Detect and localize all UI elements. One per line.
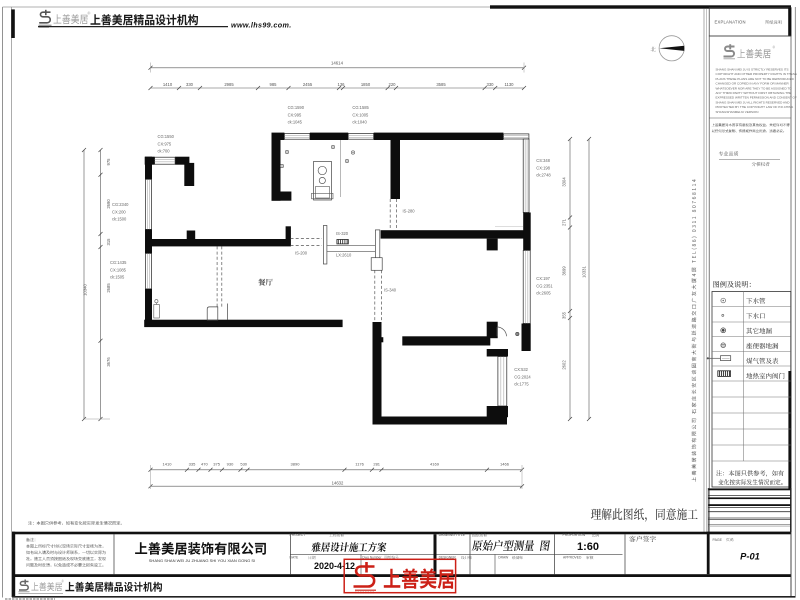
svg-text:ck:1775: ck:1775 bbox=[514, 382, 529, 387]
svg-text:ck:1045: ck:1045 bbox=[288, 120, 303, 125]
svg-text:281: 281 bbox=[373, 462, 380, 467]
svg-text:2020-4-12: 2020-4-12 bbox=[314, 561, 355, 571]
svg-text:10340: 10340 bbox=[83, 284, 88, 296]
svg-text:LX:2610: LX:2610 bbox=[336, 253, 352, 258]
svg-text:PROJECT: PROJECT bbox=[290, 533, 306, 537]
svg-text:2685: 2685 bbox=[106, 283, 111, 293]
svg-text:APPROVED: APPROVED bbox=[563, 556, 582, 560]
svg-text:985: 985 bbox=[270, 82, 278, 87]
svg-text:IS-340: IS-340 bbox=[384, 288, 397, 293]
svg-text:136: 136 bbox=[338, 82, 346, 87]
svg-text:EXPRESSED WRITTEN PERMISSION A: EXPRESSED WRITTEN PERMISSION AND CONSENT… bbox=[716, 96, 797, 100]
svg-text:CG:2024: CG:2024 bbox=[514, 374, 531, 379]
svg-text:PLANS THESE PLANS ARE NOT TO B: PLANS THESE PLANS ARE NOT TO BE REPRODUC… bbox=[716, 77, 795, 81]
svg-text:ck:1500: ck:1500 bbox=[112, 217, 127, 222]
svg-text:355: 355 bbox=[562, 311, 567, 319]
svg-text:IS-280: IS-280 bbox=[403, 209, 416, 214]
svg-text:ANY THIRD PARTY WITHOUT FIRST: ANY THIRD PARTY WITHOUT FIRST OBTAINING … bbox=[716, 91, 792, 95]
svg-text:CX:197: CX:197 bbox=[536, 276, 550, 281]
svg-text:530: 530 bbox=[240, 462, 247, 467]
svg-text:ck:1040: ck:1040 bbox=[352, 120, 367, 125]
svg-text:CG:1435: CG:1435 bbox=[110, 260, 127, 265]
svg-text:SHANG SHAN MEI JU ALL RIGHTS: SHANG SHAN MEI JU ALL RIGHTS RESERVED AN… bbox=[716, 100, 791, 104]
svg-text:3699: 3699 bbox=[562, 266, 567, 276]
svg-text:1130: 1130 bbox=[504, 82, 514, 87]
svg-text:ck:1505: ck:1505 bbox=[110, 275, 125, 280]
svg-text:CX:1005: CX:1005 bbox=[352, 112, 369, 117]
svg-text:DRAWING TITLE: DRAWING TITLE bbox=[439, 533, 466, 537]
svg-text:220: 220 bbox=[389, 82, 397, 87]
svg-text:CX:198: CX:198 bbox=[536, 165, 550, 170]
svg-text:CX:532: CX:532 bbox=[514, 367, 528, 372]
svg-text:2985: 2985 bbox=[224, 82, 234, 87]
svg-text:PAGE: PAGE bbox=[713, 538, 723, 542]
svg-text:ck:2605: ck:2605 bbox=[536, 291, 551, 296]
svg-text:®: ® bbox=[773, 46, 776, 50]
svg-text:DATE: DATE bbox=[290, 556, 300, 560]
svg-text:ck:700: ck:700 bbox=[158, 149, 171, 154]
svg-text:CX:200: CX:200 bbox=[112, 209, 126, 214]
svg-text:IS-200: IS-200 bbox=[295, 251, 308, 256]
svg-text:PROPORTION: PROPORTION bbox=[563, 533, 586, 537]
svg-text:3304: 3304 bbox=[562, 177, 567, 187]
svg-text:EXPLANATION: EXPLANATION bbox=[715, 20, 746, 25]
svg-text:CG:1550: CG:1550 bbox=[158, 134, 175, 139]
svg-text:1850: 1850 bbox=[361, 82, 371, 87]
svg-text:IS-320: IS-320 bbox=[336, 231, 349, 236]
svg-text:CG:2351: CG:2351 bbox=[536, 283, 553, 288]
svg-text:WHATSOEVER NOR ARE THEY TO BE: WHATSOEVER NOR ARE THEY TO BE ASSIGNED T… bbox=[716, 86, 793, 90]
svg-text:10331: 10331 bbox=[582, 266, 587, 278]
svg-text:1:60: 1:60 bbox=[577, 541, 599, 553]
svg-text:1410: 1410 bbox=[163, 82, 173, 87]
svg-text:CG:1590: CG:1590 bbox=[288, 105, 305, 110]
svg-text:CX:995: CX:995 bbox=[288, 112, 302, 117]
svg-text:330: 330 bbox=[186, 82, 194, 87]
svg-text:CG:1585: CG:1585 bbox=[352, 105, 369, 110]
svg-text:CG:2340: CG:2340 bbox=[112, 202, 129, 207]
svg-text:3676: 3676 bbox=[106, 357, 111, 367]
svg-text:3890: 3890 bbox=[291, 462, 301, 467]
svg-text:975: 975 bbox=[106, 158, 111, 166]
svg-text:930: 930 bbox=[227, 462, 234, 467]
svg-text:CX:1085: CX:1085 bbox=[110, 267, 127, 272]
svg-text:®: ® bbox=[87, 11, 90, 16]
svg-text:SHANG SHAN WEI JU ZHUANG SHI Y: SHANG SHAN WEI JU ZHUANG SHI YOU XIAN GO… bbox=[149, 558, 256, 563]
svg-text:SHANG SHAN MEI JU IS STRICTLY: SHANG SHAN MEI JU IS STRICTLY RESERVES I… bbox=[716, 68, 789, 72]
svg-text:2690: 2690 bbox=[106, 199, 111, 209]
svg-text:COPYRIGHT AND OTHER PROPERTY R: COPYRIGHT AND OTHER PROPERTY RIGHTS IN T… bbox=[716, 72, 797, 76]
svg-text:SHANGSHANMEIJU VERSION: SHANGSHANMEIJU VERSION bbox=[716, 110, 759, 114]
svg-text:CX:975: CX:975 bbox=[158, 141, 172, 146]
svg-text:14632: 14632 bbox=[332, 481, 344, 486]
svg-text:375: 375 bbox=[213, 462, 220, 467]
svg-text:271: 271 bbox=[562, 218, 567, 226]
svg-text:1176: 1176 bbox=[355, 462, 364, 467]
svg-text:ck:2748: ck:2748 bbox=[536, 173, 551, 178]
svg-text:www.lhs99.com.: www.lhs99.com. bbox=[231, 21, 292, 30]
svg-text:DRAW: DRAW bbox=[498, 556, 509, 560]
svg-text:PROTECTED BY THE COPYRIGHT LAW: PROTECTED BY THE COPYRIGHT LAW OF P.R.CH… bbox=[716, 105, 795, 109]
svg-text:1410: 1410 bbox=[163, 462, 173, 467]
svg-text:2455: 2455 bbox=[303, 82, 313, 87]
svg-text:P-01: P-01 bbox=[740, 551, 760, 561]
svg-text:CS:348: CS:348 bbox=[536, 158, 550, 163]
svg-text:335: 335 bbox=[189, 462, 196, 467]
svg-text:1466: 1466 bbox=[500, 462, 510, 467]
svg-text:315: 315 bbox=[106, 238, 111, 246]
svg-text:470: 470 bbox=[201, 462, 208, 467]
svg-text:2602: 2602 bbox=[562, 360, 567, 370]
svg-text:3585: 3585 bbox=[436, 82, 446, 87]
svg-text:14614: 14614 bbox=[331, 60, 344, 65]
svg-text:4169: 4169 bbox=[430, 462, 440, 467]
svg-text:330: 330 bbox=[487, 82, 495, 87]
svg-text:CHANGED OR COPIED IN ANY FORM: CHANGED OR COPIED IN ANY FORM OR MANNER bbox=[716, 82, 790, 86]
